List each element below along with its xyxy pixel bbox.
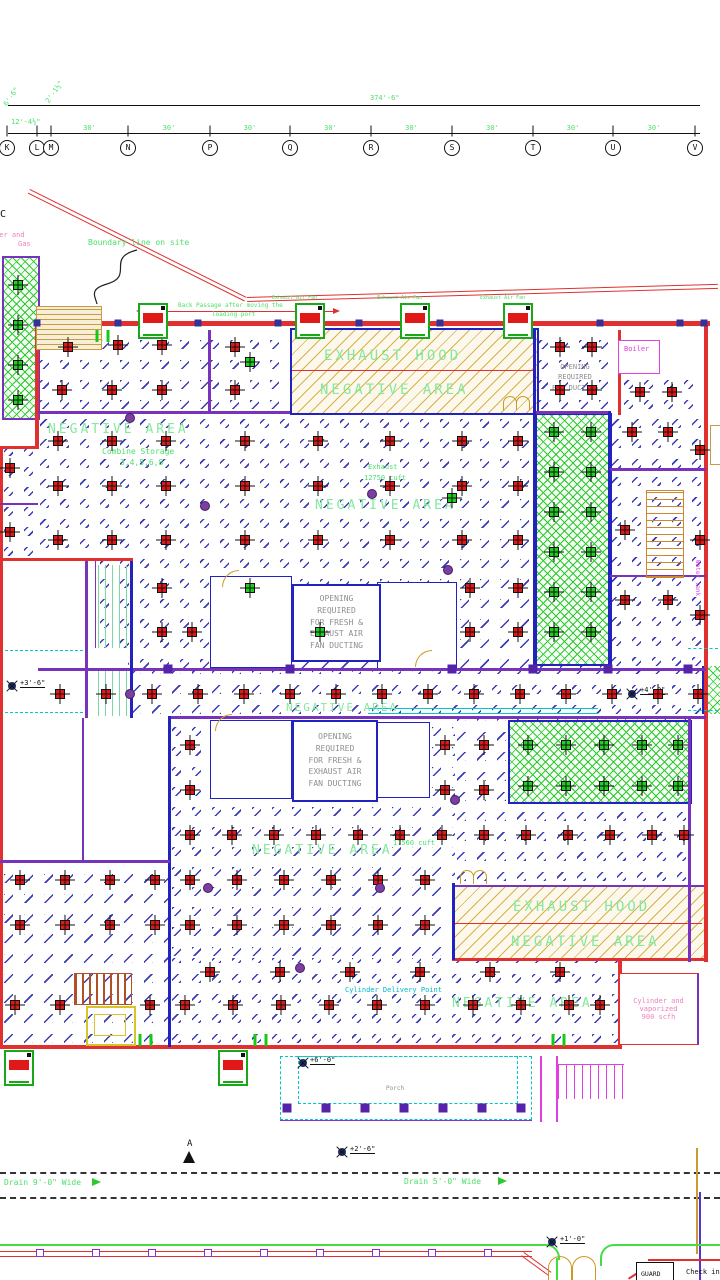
flow-arrow-icon: [498, 1177, 507, 1185]
green-zone: [508, 720, 692, 804]
dashed-opening: [688, 648, 718, 649]
exhaust-diffuser-symbol: [107, 535, 117, 545]
guard-house: GUARD: [636, 1262, 674, 1280]
opening-line: REQUIRED: [316, 744, 355, 755]
column-symbol: [275, 320, 282, 327]
fence-post-symbol: [92, 1249, 100, 1257]
exhaust-diffuser-symbol: [564, 1000, 574, 1010]
exhaust-diffuser-symbol: [10, 1000, 20, 1010]
bay-dim-label: 30': [486, 124, 499, 132]
dashed-opening: [0, 650, 88, 651]
exhaust-diffuser-symbol: [187, 627, 197, 637]
exhaust-hood-zone-top: EXHAUST HOOD NEGATIVE AREA: [290, 328, 539, 415]
fence-post-symbol: [484, 1249, 492, 1257]
exhaust-diffuser-symbol: [653, 689, 663, 699]
exhaust-diffuser-symbol: [563, 830, 573, 840]
exhaust-diffuser-symbol: [423, 689, 433, 699]
supply-diffuser-symbol: [586, 507, 596, 517]
porch-column-symbol: [283, 1104, 292, 1113]
supply-diffuser-symbol: [586, 547, 596, 557]
exhaust-diffuser-symbol: [679, 830, 689, 840]
exhaust-diffuser-symbol: [663, 595, 673, 605]
opening-line: OPENING: [560, 363, 590, 372]
porch-column-symbol: [400, 1104, 409, 1113]
site-edge-green: [600, 1258, 602, 1266]
grid-bubble: M: [43, 140, 59, 156]
exhaust-diffuser-symbol: [667, 387, 677, 397]
supply-diffuser-symbol: [245, 583, 255, 593]
grid-bubble: V: [687, 140, 703, 156]
supply-diffuser-symbol: [673, 781, 683, 791]
negative-area-label: NEGATIVE AREA: [252, 843, 393, 859]
exhaust-diffuser-symbol: [485, 967, 495, 977]
door-mark-symbol: [107, 330, 110, 342]
utility-line-orange: [696, 1148, 698, 1254]
wall-segment: [608, 411, 611, 670]
guard-label: GUARD: [641, 1271, 661, 1279]
exhaust-diffuser-symbol: [185, 920, 195, 930]
exhaust-diffuser-symbol: [465, 627, 475, 637]
column-symbol: [164, 665, 173, 674]
exhaust-diffuser-symbol: [150, 920, 160, 930]
exhaust-diffuser-symbol: [232, 875, 242, 885]
dashed-opening: [688, 710, 718, 711]
room: [376, 722, 430, 798]
column-symbol: [195, 320, 202, 327]
dashed-opening: [0, 712, 88, 713]
yellow-box-inner: [94, 1014, 126, 1036]
overall-dim-line: [8, 105, 700, 106]
exhaust-diffuser-symbol: [385, 481, 395, 491]
grid-bubble-partial: C: [0, 209, 6, 221]
supply-diffuser-symbol: [523, 781, 533, 791]
exhaust-diffuser-symbol: [53, 481, 63, 491]
exhaust-diffuser-symbol: [57, 385, 67, 395]
exhaust-diffuser-symbol: [555, 385, 565, 395]
grid-tick: [37, 126, 38, 137]
wall-segment: [540, 1056, 542, 1122]
exhaust-diffuser-symbol: [457, 436, 467, 446]
porch-label: Porch: [386, 1085, 404, 1092]
grid-tick: [371, 126, 372, 137]
opening-required-box-2: OPENING REQUIRED FOR FRESH & EXHAUST AIR…: [292, 720, 378, 802]
exhaust-diffuser-symbol: [269, 830, 279, 840]
exhaust-diffuser-symbol: [555, 967, 565, 977]
corner-note-2: Gas: [18, 240, 31, 248]
opening-line: FOR FRESH &: [309, 756, 362, 767]
supply-diffuser-symbol: [549, 507, 559, 517]
exhaust-diffuser-symbol: [185, 785, 195, 795]
exhaust-diffuser-symbol: [353, 830, 363, 840]
exhaust-diffuser-symbol: [465, 583, 475, 593]
north-label: A: [187, 1139, 192, 1150]
exhaust-diffuser-symbol: [240, 535, 250, 545]
exhaust-diffuser-symbol: [647, 830, 657, 840]
drain-label-left: Drain 9'-0" Wide: [4, 1178, 81, 1188]
check-in-label: Check in: [686, 1268, 720, 1276]
exhaust-diffuser-symbol: [5, 527, 15, 537]
arrowhead-right: [333, 308, 340, 314]
exhaust-diffuser-symbol: [105, 920, 115, 930]
exhaust-diffuser-symbol: [15, 920, 25, 930]
flow-arrow-icon: [92, 1178, 101, 1186]
exhaust-diffuser-symbol: [555, 342, 565, 352]
supply-diffuser-symbol: [13, 280, 23, 290]
room: [210, 720, 292, 799]
door-mark-symbol: [552, 1034, 555, 1046]
level-label: +2'-6": [350, 1145, 375, 1154]
supply-diffuser-symbol: [599, 740, 609, 750]
porch-base-line: [280, 1120, 532, 1121]
opening-line: OPENING: [318, 732, 352, 743]
exhaust-diffuser-symbol: [635, 387, 645, 397]
exhaust-diffuser-symbol: [415, 967, 425, 977]
level-label: +1'-0": [560, 1235, 585, 1244]
gate-arc-icon: [572, 1256, 596, 1280]
exhaust-diffuser-symbol: [239, 689, 249, 699]
flex-partition: [92, 565, 128, 658]
exhaust-diffuser-symbol: [105, 875, 115, 885]
exhaust-hood-zone-bottom: EXHAUST HOOD NEGATIVE AREA: [455, 885, 706, 960]
wall-segment: [38, 411, 290, 414]
level-marker-icon: [548, 1238, 556, 1246]
gate-arc-icon: [548, 1256, 572, 1280]
column-symbol: [448, 665, 457, 674]
exhaust-diffuser-symbol: [53, 436, 63, 446]
wall-segment: [0, 558, 133, 561]
grid-dim-line: [8, 133, 700, 134]
sliding-door-track: [368, 708, 598, 714]
supply-diffuser-symbol: [13, 360, 23, 370]
site-edge-green: [614, 1244, 720, 1246]
cylinder-room: Cylinder and vaporized 900 scfh: [620, 973, 699, 1045]
drain-edge-line: [0, 1197, 720, 1199]
exhaust-diffuser-symbol: [240, 481, 250, 491]
bay-dim-label: 30': [324, 124, 337, 132]
exhaust-diffuser-symbol: [101, 689, 111, 699]
exhaust-diffuser-symbol: [513, 436, 523, 446]
exhaust-diffuser-symbol: [587, 385, 597, 395]
cylinder-note-line: Cylinder and: [633, 997, 684, 1005]
exhaust-diffuser-symbol: [605, 830, 615, 840]
supply-diffuser-symbol: [586, 467, 596, 477]
exhaust-diffuser-symbol: [440, 740, 450, 750]
exhaust-diffuser-symbol: [157, 340, 167, 350]
exhaust-diffuser-symbol: [60, 875, 70, 885]
grid-tick: [7, 126, 8, 137]
combine-storage-units: 3,4,5,6,8: [120, 458, 163, 468]
exhaust-diffuser-symbol: [107, 436, 117, 446]
duct-junction-symbol: [125, 413, 135, 423]
duct-junction-symbol: [367, 489, 377, 499]
fence-post-symbol: [372, 1249, 380, 1257]
exhaust-diffuser-symbol: [479, 830, 489, 840]
duct-junction-symbol: [450, 795, 460, 805]
exhaust-diffuser-symbol: [420, 875, 430, 885]
duct-junction-symbol: [125, 689, 135, 699]
overall-dim-label: 374'-6": [368, 94, 402, 102]
exhaust-diffuser-symbol: [107, 481, 117, 491]
wall-segment: [535, 411, 610, 414]
exhaust-fan-unit: [138, 303, 168, 339]
supply-diffuser-symbol: [586, 427, 596, 437]
fence-post-symbol: [260, 1249, 268, 1257]
exhaust-diffuser-symbol: [377, 689, 387, 699]
exhaust-diffuser-symbol: [276, 1000, 286, 1010]
exhaust-diffuser-symbol: [150, 875, 160, 885]
exhaust-diffuser-symbol: [157, 385, 167, 395]
exhaust-fan-label-1: Exhaust Air Fan: [272, 295, 317, 301]
duct-junction-symbol: [443, 565, 453, 575]
porch-column-symbol: [322, 1104, 331, 1113]
exhaust-diffuser-symbol: [185, 740, 195, 750]
wall-segment: [533, 330, 536, 670]
drain-edge-line: [0, 1172, 720, 1174]
exhaust-diffuser-symbol: [521, 830, 531, 840]
exhaust-diffuser-symbol: [516, 1000, 526, 1010]
exhaust-diffuser-symbol: [145, 1000, 155, 1010]
supply-diffuser-symbol: [549, 627, 559, 637]
porch-column-symbol: [478, 1104, 487, 1113]
exhaust-diffuser-symbol: [161, 481, 171, 491]
exhaust-diffuser-symbol: [469, 689, 479, 699]
grid-tick: [290, 126, 291, 137]
exhaust-diffuser-symbol: [157, 627, 167, 637]
wall-segment: [170, 716, 706, 719]
grid-bubble: R: [363, 140, 379, 156]
level-label: +6'-0": [310, 1056, 335, 1065]
exhaust-diffuser-symbol: [515, 689, 525, 699]
water-tank-label: Water tank: [694, 560, 701, 596]
hood-divider: [292, 370, 533, 371]
grid-bubble: Q: [282, 140, 298, 156]
exhaust-diffuser-symbol: [107, 385, 117, 395]
supply-diffuser-symbol: [13, 320, 23, 330]
wall-segment: [168, 716, 171, 1047]
exhaust-diffuser-symbol: [468, 1000, 478, 1010]
exhaust-diffuser-symbol: [479, 785, 489, 795]
leader-squiggle: [85, 246, 145, 306]
grid-tick: [128, 126, 129, 137]
supply-diffuser-symbol: [586, 587, 596, 597]
dim-sub3: 2'-1½": [44, 79, 65, 105]
room-left-large: [0, 718, 168, 860]
wall-segment: [35, 321, 710, 326]
grid-tick: [613, 126, 614, 137]
supply-diffuser-symbol: [549, 427, 559, 437]
wall-segment: [452, 883, 455, 960]
cylinder-note-line: 900 scfh: [642, 1013, 676, 1021]
exhaust-diffuser-symbol: [232, 920, 242, 930]
exhaust-fan-unit: [400, 303, 430, 339]
door-swing-icon: [460, 870, 474, 884]
site-edge-green: [0, 1244, 546, 1246]
column-symbol: [34, 320, 41, 327]
exhaust-fan-label-3: Exhaust Air Fan: [480, 295, 525, 301]
exhaust-diffuser-symbol: [595, 1000, 605, 1010]
grid-bubble: N: [120, 140, 136, 156]
exhaust-diffuser-symbol: [285, 689, 295, 699]
exhaust-diffuser-symbol: [157, 583, 167, 593]
supply-diffuser-symbol: [561, 740, 571, 750]
supply-diffuser-symbol: [315, 627, 325, 637]
exhaust-diffuser-symbol: [275, 967, 285, 977]
exhaust-diffuser-symbol: [395, 830, 405, 840]
hatch-area: [610, 413, 706, 470]
exhaust-diffuser-symbol: [326, 920, 336, 930]
exhaust-volume-word: Exhaust: [368, 463, 398, 471]
exhaust-diffuser-symbol: [230, 385, 240, 395]
level-marker-icon: [299, 1059, 307, 1067]
door-swing-icon: [473, 870, 487, 884]
exhaust-diffuser-symbol: [193, 689, 203, 699]
column-symbol: [684, 665, 693, 674]
supply-diffuser-symbol: [549, 587, 559, 597]
delivery-point-note: Cylinder Delivery Point: [345, 986, 442, 994]
exhaust-diffuser-symbol: [457, 481, 467, 491]
exhaust-diffuser-symbol: [230, 342, 240, 352]
exhaust-diffuser-symbol: [513, 627, 523, 637]
column-symbol: [437, 320, 444, 327]
exhaust-diffuser-symbol: [607, 689, 617, 699]
exhaust-diffuser-symbol: [345, 967, 355, 977]
supply-diffuser-symbol: [549, 467, 559, 477]
exhaust-diffuser-symbol: [279, 875, 289, 885]
grid-bubble: S: [444, 140, 460, 156]
combine-storage-label: Combine Storage: [102, 447, 174, 457]
fence-post-symbol: [316, 1249, 324, 1257]
supply-diffuser-symbol: [673, 740, 683, 750]
exhaust-fan-unit: [218, 1050, 248, 1086]
grid-bubble: P: [202, 140, 218, 156]
grid-tick: [533, 126, 534, 137]
door-mark-symbol: [139, 1034, 142, 1046]
exhaust-diffuser-symbol: [420, 1000, 430, 1010]
exhaust-fan-label-2: Exhaust Air Fan: [377, 295, 422, 301]
wall-segment: [452, 958, 708, 961]
exhaust-fan-unit: [295, 303, 325, 339]
door-swing-icon: [503, 396, 517, 410]
exhaust-diffuser-symbol: [55, 689, 65, 699]
site-edge-curve: [600, 1244, 616, 1260]
exhaust-diffuser-symbol: [372, 1000, 382, 1010]
exhaust-hood-title: EXHAUST HOOD: [513, 899, 650, 916]
exhaust-diffuser-symbol: [311, 830, 321, 840]
stairs: [558, 1064, 624, 1099]
door-mark-symbol: [96, 330, 99, 342]
back-passage-note-1: Back Passage after moving the: [178, 302, 283, 309]
porch-column-symbol: [439, 1104, 448, 1113]
drain-label-right: Drain 5'-0" Wide: [404, 1177, 481, 1187]
level-marker-icon: [338, 1148, 346, 1156]
wall-segment: [85, 558, 88, 718]
grid-tick: [452, 126, 453, 137]
opening-line: REQUIRED: [317, 606, 356, 617]
door-mark-symbol: [265, 1034, 268, 1046]
grid-bubble: T: [525, 140, 541, 156]
bay-dim-label: 30': [567, 124, 580, 132]
wall-segment: [0, 446, 38, 449]
bay-dim-label: 30': [648, 124, 661, 132]
supply-diffuser-symbol: [523, 740, 533, 750]
exhaust-diffuser-symbol: [60, 920, 70, 930]
column-symbol: [115, 320, 122, 327]
opening-line: OPENING: [320, 594, 354, 605]
exhaust-diffuser-symbol: [279, 920, 289, 930]
negative-area-label: NEGATIVE AREA: [320, 382, 469, 399]
supply-diffuser-symbol: [447, 493, 457, 503]
door-mark-symbol: [150, 1034, 153, 1046]
exhaust-diffuser-symbol: [513, 535, 523, 545]
boiler-label: Boiler: [624, 345, 649, 353]
exhaust-diffuser-symbol: [313, 436, 323, 446]
opening-line: REQUIRED: [558, 373, 592, 382]
exhaust-diffuser-symbol: [240, 436, 250, 446]
north-arrow-icon: [183, 1151, 195, 1163]
storage-rack: [74, 973, 132, 1005]
exhaust-diffuser-symbol: [227, 830, 237, 840]
wall-segment: [610, 468, 706, 471]
exhaust-diffuser-symbol: [185, 875, 195, 885]
exhaust-diffuser-symbol: [5, 463, 15, 473]
stairs: [646, 490, 684, 578]
exhaust-diffuser-symbol: [385, 535, 395, 545]
duct-junction-symbol: [375, 883, 385, 893]
exhaust-diffuser-symbol: [385, 436, 395, 446]
column-symbol: [701, 320, 708, 327]
grid-tick: [695, 126, 696, 137]
exhaust-diffuser-symbol: [587, 342, 597, 352]
exhaust-diffuser-symbol: [695, 610, 705, 620]
exhaust-diffuser-symbol: [695, 535, 705, 545]
column-symbol: [677, 320, 684, 327]
exhaust-diffuser-symbol: [147, 689, 157, 699]
exhaust-diffuser-symbol: [53, 535, 63, 545]
supply-diffuser-symbol: [637, 781, 647, 791]
exhaust-diffuser-symbol: [15, 875, 25, 885]
wall-segment: [0, 446, 3, 1048]
cylinder-note-line: vaporized: [640, 1005, 678, 1013]
bay-dim-label: 30': [83, 124, 96, 132]
room: [0, 561, 96, 660]
opening-line: FAN DUCTING: [309, 779, 362, 790]
exhaust-diffuser-symbol: [437, 830, 447, 840]
floor-plan-canvas[interactable]: 374'-6" 6'-6" 12'-4½" 2'-1½" C Boundary …: [0, 0, 720, 1280]
supply-diffuser-symbol: [561, 781, 571, 791]
supply-diffuser-symbol: [586, 627, 596, 637]
grid-tick: [210, 126, 211, 137]
exhaust-diffuser-symbol: [457, 535, 467, 545]
exhaust-fan-unit: [503, 303, 533, 339]
wall-segment: [0, 860, 170, 863]
exhaust-diffuser-symbol: [620, 525, 630, 535]
bay-dim-label: 30': [405, 124, 418, 132]
negative-area-label: NEGATIVE AREA: [315, 498, 456, 514]
exhaust-diffuser-symbol: [113, 340, 123, 350]
exhaust-diffuser-symbol: [513, 583, 523, 593]
fence-line: [648, 1259, 720, 1261]
tan-box: [710, 425, 720, 465]
exhaust-diffuser-symbol: [324, 1000, 334, 1010]
column-symbol: [529, 665, 538, 674]
fence-post-symbol: [148, 1249, 156, 1257]
exhaust-diffuser-symbol: [326, 875, 336, 885]
opening-line: EXHAUST AIR: [309, 767, 362, 778]
opening-required-box-1: OPENING REQUIRED FOR FRESH & EXHAUST AIR…: [292, 584, 381, 662]
back-passage-note-2: loading port: [212, 311, 255, 318]
boiler-room: Boiler: [618, 340, 660, 374]
exhaust-diffuser-symbol: [440, 785, 450, 795]
